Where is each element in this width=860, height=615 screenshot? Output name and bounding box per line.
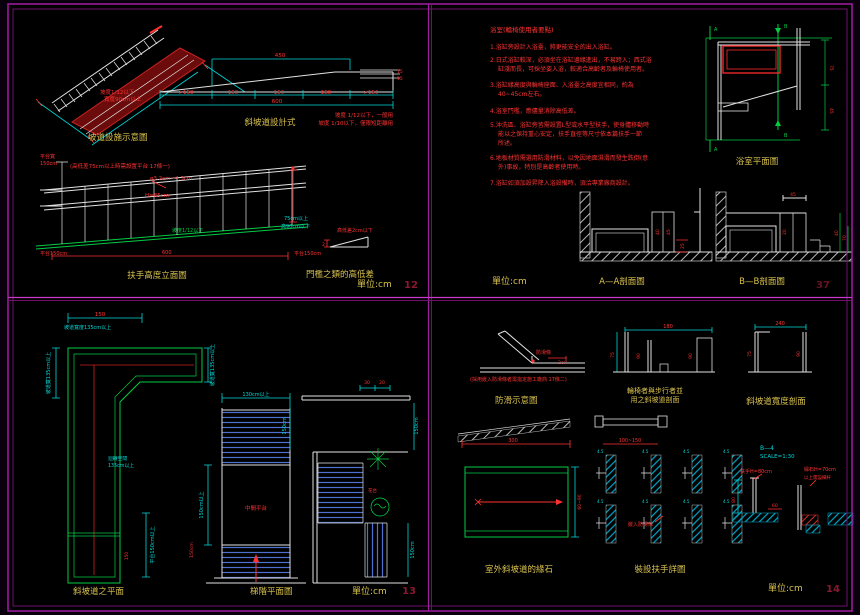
s1-dim-top: 180 bbox=[663, 324, 673, 330]
note-line: 4.浴室門檻，應儘量消除高低差。 bbox=[490, 107, 580, 115]
b4-label-2: 緣石H=70cm bbox=[804, 466, 836, 473]
detail-dim: 4.5 bbox=[597, 499, 604, 504]
page-number-1: 12 bbox=[404, 280, 418, 291]
platform-left-label: 平台150cm bbox=[40, 250, 67, 257]
handrail-note: (高低差75cm以上時需設置平台 17條一) bbox=[70, 162, 170, 170]
side-dim-1: 300 bbox=[508, 438, 518, 444]
antislip-note: (採用嵌入防滑條者需指定施工廠商 17條二) bbox=[470, 376, 567, 383]
lramp-dim-bottom: 150 bbox=[124, 552, 130, 561]
gplan-right-dim-2: 150cm bbox=[410, 541, 416, 558]
antislip-label: 防滑條 bbox=[536, 349, 551, 356]
b4-scale: SCALE=1:30 bbox=[760, 454, 795, 460]
lramp-width-top: 坡道寬度135cm以上 bbox=[64, 324, 111, 331]
b4-dim-2: 80 bbox=[731, 497, 737, 503]
b4-label-3: 以上需設欄杆 bbox=[804, 474, 831, 481]
handrail-height: H=85cm bbox=[145, 193, 169, 199]
section-mark-b-bottom: B bbox=[784, 133, 788, 139]
note-line: 所述。 bbox=[498, 139, 516, 147]
sa-dim-2: 45 bbox=[666, 229, 672, 235]
slope-note-2: 坡度 1/10以下，僅限短距離用 bbox=[318, 119, 393, 127]
details-label: 嵌入防滑條 bbox=[628, 521, 653, 528]
threshold-title: 門檻之類的高低差 bbox=[306, 269, 374, 280]
handrail-right2: 高90cm以下 bbox=[281, 223, 310, 230]
bathroom-plan-title: 浴室平面圖 bbox=[736, 156, 779, 167]
stair-landing-label: 中間平台 bbox=[245, 504, 268, 512]
handrail-title: 扶手高度立面圖 bbox=[127, 270, 187, 281]
gplan-left-dim: 150cm bbox=[282, 417, 288, 434]
gplan-dim-1: 30 bbox=[364, 380, 370, 386]
plan-dim-1: 75 bbox=[828, 65, 834, 71]
detail-dim: 4.5 bbox=[597, 449, 604, 454]
detail-dim: 4.5 bbox=[683, 499, 690, 504]
dim-total: 600 bbox=[272, 99, 283, 105]
s1-dim-1: 75 bbox=[610, 352, 616, 358]
plan-dim-2: 45 bbox=[828, 108, 834, 114]
stair-dim-left2: 150cm bbox=[189, 542, 195, 557]
section-a-title: A—A剖面圖 bbox=[599, 276, 645, 287]
stair-dim-left: 150cm以上 bbox=[198, 491, 205, 518]
note-line: 2.日式浴缸較深，必須坐在浴缸邊緣進出，不易跨入；西式浴 bbox=[490, 56, 652, 64]
lramp-platform: 平台150cm以上 bbox=[149, 526, 156, 563]
detail-dim: 4.5 bbox=[723, 449, 730, 454]
page-number-3: 13 bbox=[402, 586, 416, 597]
page-number-4: 14 bbox=[826, 584, 840, 595]
lramp-width-right: 坡道寬135cm以上 bbox=[209, 344, 216, 386]
garden-treads-vertical bbox=[365, 523, 387, 577]
s1-dim-2: 90 bbox=[636, 353, 642, 359]
details-title: 裝設扶手詳圖 bbox=[634, 564, 685, 575]
dim-seg3: 150 bbox=[274, 90, 285, 96]
s2-dim-1: 75 bbox=[747, 351, 753, 357]
sa-dim-1: 40 bbox=[655, 229, 661, 235]
cad-drawing: 坡度1/12以下 寬度90cm以上 坡道設施示意圖 450 >150 150 1… bbox=[0, 0, 860, 615]
dim-top: 450 bbox=[275, 53, 286, 59]
b4-label-1: 扶手H=80cm bbox=[740, 468, 772, 475]
note-line: 外)事故，特別是高齡者使用時。 bbox=[498, 163, 584, 171]
platform-right-label: 平台150cm bbox=[294, 250, 321, 257]
cad-drawing-canvas: 坡度1/12以下 寬度90cm以上 坡道設施示意圖 450 >150 150 1… bbox=[0, 0, 860, 615]
section-mark-a-top: A bbox=[714, 27, 718, 33]
lramp-turn-1: 迴轉空間 bbox=[108, 455, 127, 462]
stair-title: 梯階平面圖 bbox=[250, 586, 293, 597]
handrail-dia: ø3.2cm~4.3cm bbox=[150, 176, 192, 182]
s2-dim-top: 240 bbox=[775, 321, 785, 327]
dim-seg1: >150 bbox=[178, 90, 194, 96]
s2-title: 斜坡道寬度剖面 bbox=[746, 396, 806, 407]
slope-note-1: 坡度 1/12以下，一般用 bbox=[335, 111, 393, 119]
sb-dim-3: 40 bbox=[834, 230, 840, 236]
note-line: 缸淺而長，可採坐姿入浴，較適合高齡者及輪椅使用者。 bbox=[498, 65, 648, 73]
detail-dim: 4.5 bbox=[723, 499, 730, 504]
handrail-left2: 150cm bbox=[40, 161, 57, 167]
b4-code: B—4 bbox=[760, 445, 774, 452]
dim-side1: 15 bbox=[397, 69, 403, 75]
curb-dim: 60~90 bbox=[577, 494, 583, 509]
handrail-right1: 75cm以上 bbox=[284, 215, 308, 222]
lramp-turn-2: 135cm以上 bbox=[108, 462, 134, 469]
side-dim-2: 100~150 bbox=[619, 438, 641, 444]
stair-dim-top: 130cm以上 bbox=[242, 391, 269, 398]
stair-treads-top bbox=[222, 410, 290, 465]
section-title: 斜坡道設計式 bbox=[244, 117, 296, 128]
lramp-width-left: 坡道寬135cm以上 bbox=[45, 352, 52, 394]
dim-seg2: 150 bbox=[228, 90, 239, 96]
note-line: 40~45cm左右。 bbox=[498, 90, 545, 98]
b4-dim-1: 60 bbox=[772, 503, 778, 509]
s2-dim-2: 90 bbox=[796, 351, 802, 357]
note-line: 1.浴缸旁設計入浴臺，將更能安全的出入浴缸。 bbox=[490, 43, 616, 51]
s1-title-line2: 用之斜坡道剖面 bbox=[631, 395, 680, 404]
section-mark-b-top: B bbox=[784, 24, 788, 30]
s1-title-line1: 輪椅者與步行者並 bbox=[627, 386, 683, 395]
curb-title: 室外斜坡道的緣石 bbox=[485, 564, 553, 575]
note-line: 7.浴缸如須加設昇降入浴設備時，須洽專業廠商設計。 bbox=[490, 179, 634, 187]
note-line: 3.浴缸緣高度與輪椅座面、入浴臺之高度宜相同，約為 bbox=[490, 81, 634, 89]
unit-label-2: 單位:cm bbox=[492, 275, 527, 287]
handrail-slope: 坡度1/12以下 bbox=[172, 227, 203, 234]
s1-dim-3: 90 bbox=[688, 353, 694, 359]
unit-label-4: 單位:cm bbox=[768, 582, 803, 594]
note-line: 能以之保持重心安定，扶手直徑等尺寸依本篇扶手一節 bbox=[498, 130, 642, 138]
section-b-title: B—B剖面圖 bbox=[739, 276, 785, 287]
dim-seg5: >150 bbox=[363, 90, 379, 96]
gplan-dim-2: 20 bbox=[379, 380, 385, 386]
sb-dim-2: 20 bbox=[782, 229, 788, 235]
threshold-note: 高低差2cm以下 bbox=[337, 227, 373, 234]
iso-note-2: 寬度90cm以上 bbox=[104, 95, 142, 103]
detail-dim: 4.5 bbox=[642, 449, 649, 454]
detail-dim: 4.5 bbox=[683, 449, 690, 454]
unit-label-3: 單位:cm bbox=[352, 585, 387, 597]
antislip-strip-marker bbox=[531, 359, 534, 362]
antislip-dim: 2cm bbox=[558, 360, 568, 366]
sb-dim-1: 45 bbox=[790, 192, 796, 198]
garden-treads bbox=[318, 463, 363, 523]
detail-dim: 4.5 bbox=[642, 499, 649, 504]
handrail-left1: 平台寬 bbox=[40, 153, 55, 160]
handrail-length: 600 bbox=[162, 250, 172, 256]
note-line: 6.地板材質需選用防滑材料，以免因地面濕滑而發生跌倒(意 bbox=[490, 154, 648, 162]
planter-label: 花台 bbox=[368, 487, 377, 494]
iso-note-1: 坡度1/12以下 bbox=[100, 88, 135, 96]
plant-starburst bbox=[367, 448, 389, 470]
antislip-title: 防滑示意圖 bbox=[495, 395, 538, 406]
iso-title: 坡道設施示意圖 bbox=[88, 132, 148, 143]
section-mark-a-bottom: A bbox=[714, 147, 718, 153]
note-line: 5.沖洗區、浴缸旁皆需設置L型或水平型扶手，使身體移動時 bbox=[490, 121, 649, 129]
dim-seg4: 150 bbox=[321, 90, 332, 96]
bathroom-notes-title: 浴室(輪椅使用者要點) bbox=[490, 25, 554, 34]
threshold-dim: 2 bbox=[322, 242, 325, 248]
unit-label-1: 單位:cm bbox=[357, 278, 392, 290]
sa-dim-3: 25 bbox=[680, 243, 686, 249]
lramp-dim-top: 150 bbox=[95, 312, 106, 318]
lramp-title: 斜坡道之平面 bbox=[73, 586, 125, 597]
page-number-2: 37 bbox=[816, 280, 830, 291]
gplan-right-dim-1: 150cm bbox=[414, 417, 420, 434]
dim-side2: 15 bbox=[397, 76, 403, 82]
